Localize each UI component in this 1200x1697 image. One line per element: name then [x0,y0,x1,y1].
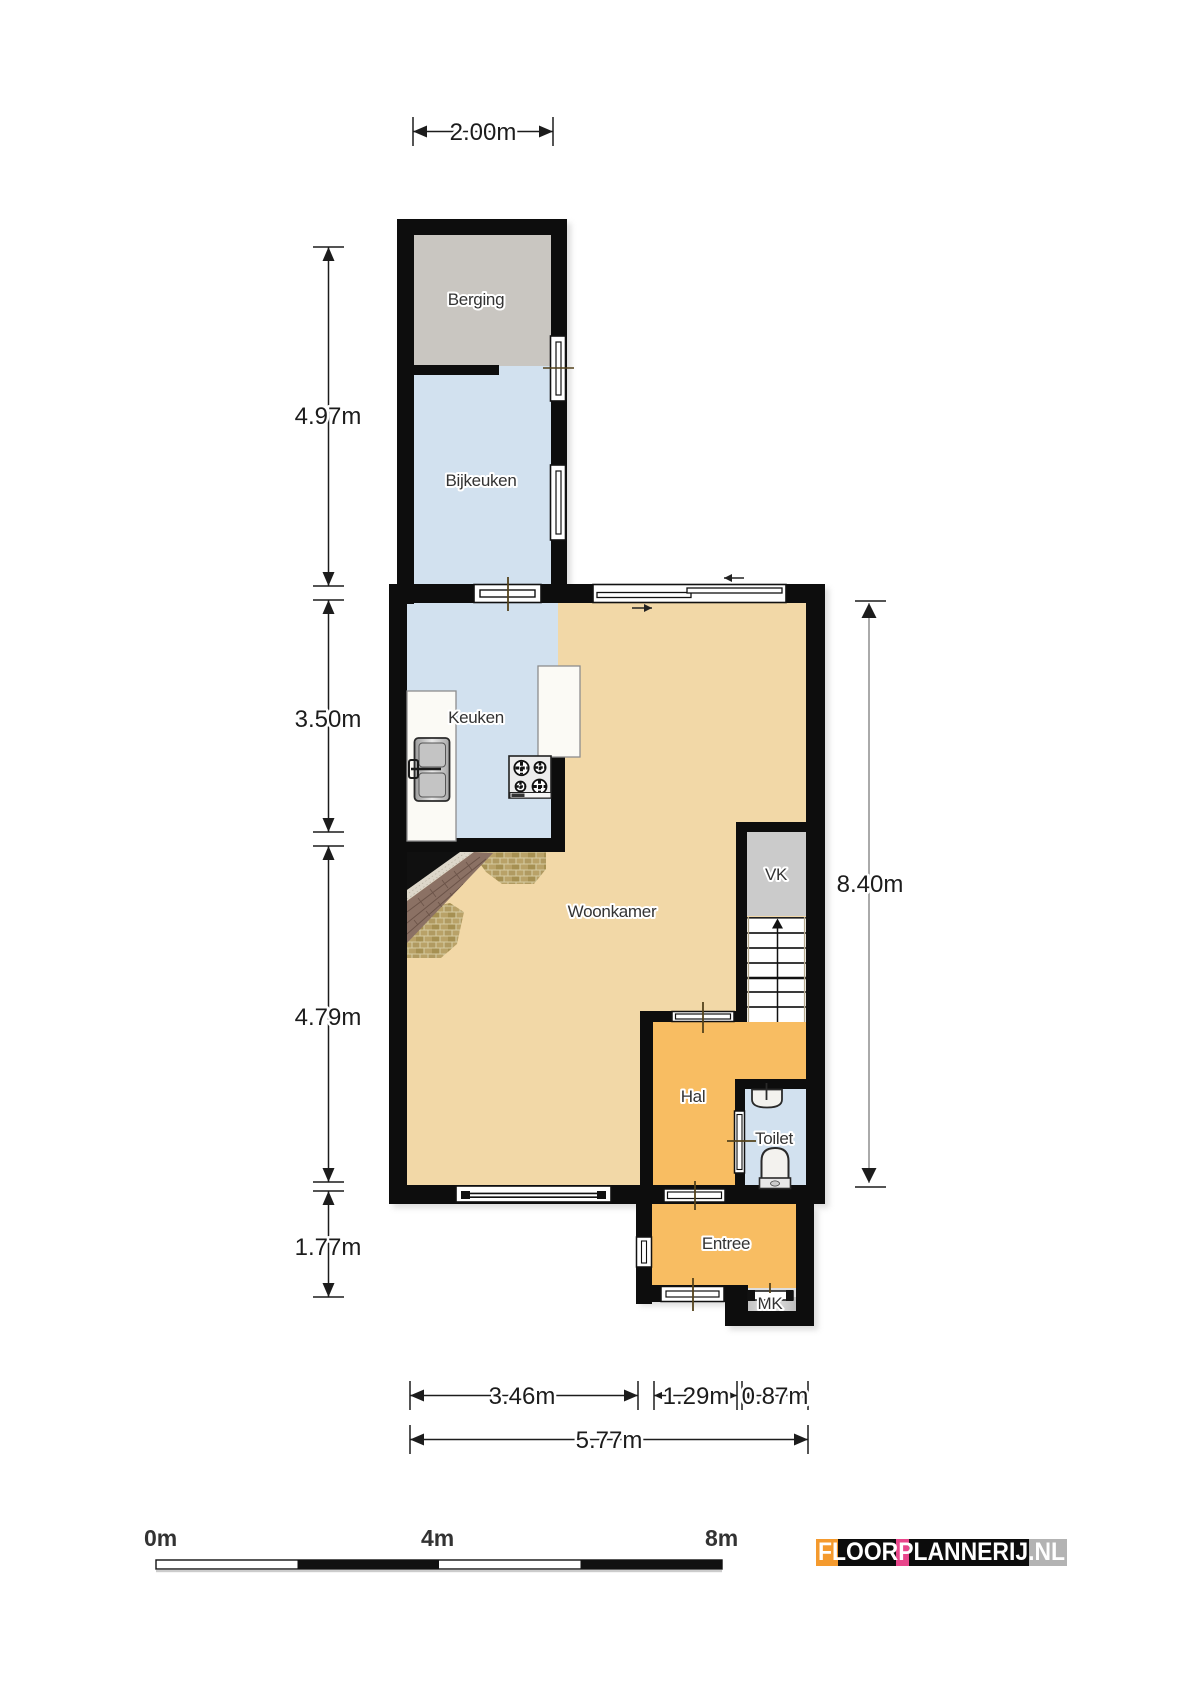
svg-text:4m: 4m [421,1525,454,1551]
svg-text:Keuken: Keuken [448,708,504,727]
svg-text:Woonkamer: Woonkamer [568,902,657,921]
svg-text:0.87m: 0.87m [742,1383,809,1410]
svg-text:Berging: Berging [448,290,505,309]
svg-text:MK: MK [758,1294,784,1313]
svg-text:4.79m: 4.79m [295,1004,362,1031]
svg-text:Toilet: Toilet [755,1129,793,1148]
svg-text:2.00m: 2.00m [450,119,517,146]
svg-text:1.29m: 1.29m [663,1383,730,1410]
svg-text:3.50m: 3.50m [295,706,362,733]
svg-text:8m: 8m [705,1525,738,1551]
svg-text:1.77m: 1.77m [295,1234,362,1261]
svg-text:FLOORPLANNERIJ.NL: FLOORPLANNERIJ.NL [818,1538,1065,1566]
svg-text:Hal: Hal [681,1087,706,1106]
svg-text:3.46m: 3.46m [489,1383,556,1410]
svg-text:5.77m: 5.77m [576,1427,643,1454]
svg-text:Entree: Entree [702,1234,750,1253]
svg-text:8.40m: 8.40m [837,871,904,898]
svg-text:Bijkeuken: Bijkeuken [445,471,516,490]
svg-text:0m: 0m [144,1525,177,1551]
svg-text:VK: VK [765,865,788,884]
svg-text:4.97m: 4.97m [295,403,362,430]
